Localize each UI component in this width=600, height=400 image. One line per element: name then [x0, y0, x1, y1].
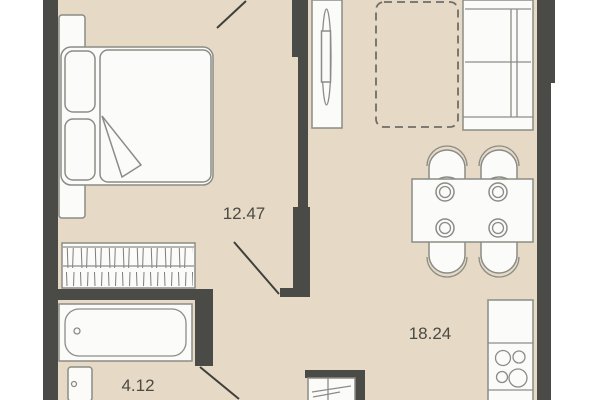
bathroom-door-pillar [195, 300, 213, 366]
bathroom-north-wall [43, 289, 213, 300]
counter-body [488, 300, 533, 400]
mirror-handle [322, 31, 331, 82]
right-exterior-wall-upper [537, 0, 555, 83]
pillow [65, 51, 95, 112]
bedroom-area-label: 12.47 [223, 204, 266, 223]
interior-wall-foot [280, 288, 310, 297]
living-kitchen-area-label: 18.24 [409, 324, 452, 343]
right-exterior-wall-lower [537, 83, 551, 400]
plate [489, 219, 507, 237]
bathroom-area-label: 4.12 [121, 376, 154, 395]
floor-plan: 12.47 18.24 4.12 [0, 0, 600, 400]
wardrobe-hangers [64, 248, 193, 286]
plate [436, 183, 454, 201]
sofa [463, 0, 533, 130]
mirror-cabinet [312, 0, 342, 128]
appliance-niche [308, 378, 355, 400]
sofa-body [463, 0, 533, 130]
left-exterior-wall [43, 0, 58, 400]
floor-plan-canvas: 12.47 18.24 4.12 [0, 0, 600, 400]
wardrobe [62, 243, 195, 288]
plate [436, 219, 454, 237]
niche-right-wall [355, 370, 365, 400]
interior-wall-middle [298, 57, 308, 208]
kitchen-counter [488, 300, 533, 400]
plate [489, 183, 507, 201]
interior-wall-upper [292, 0, 308, 57]
interior-wall-lower [293, 207, 310, 297]
pillow [65, 119, 95, 180]
dining-table [412, 179, 533, 242]
